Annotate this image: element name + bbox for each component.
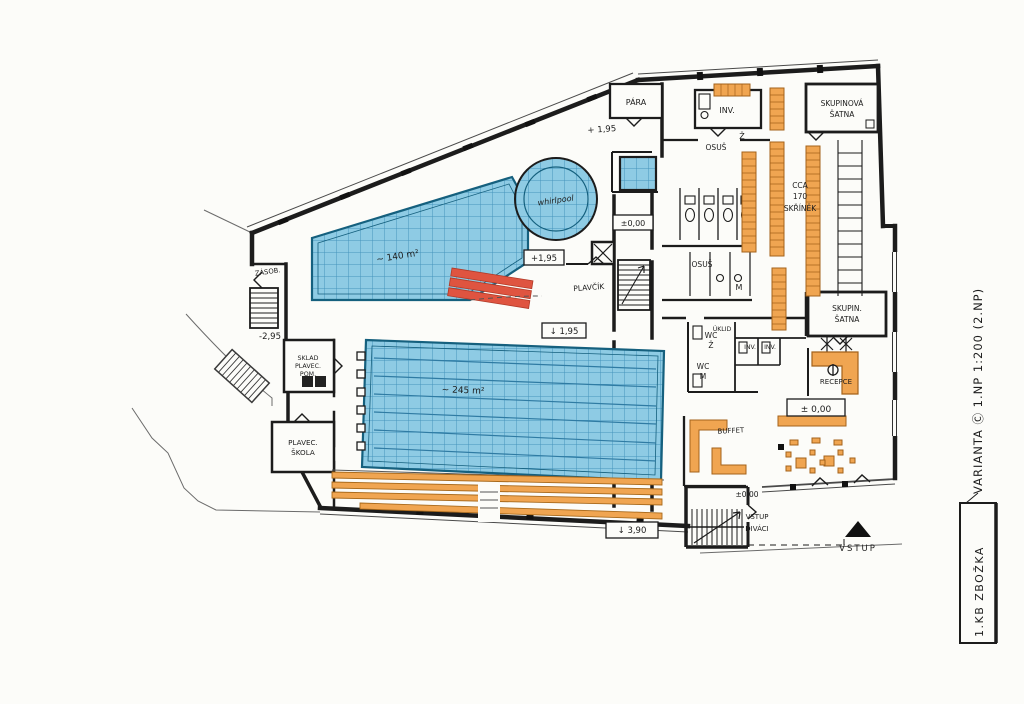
level-plus195-deck: + 1,95 bbox=[587, 124, 616, 136]
room-label-zasob: ZÁSOB. bbox=[254, 265, 281, 278]
entrance-turnstiles bbox=[821, 336, 852, 352]
room-label-skupin-satna-2: ŠATNA bbox=[835, 315, 861, 324]
margin-variant-note: VARIANTA Ⓒ 1.NP 1:200 (2.NP) bbox=[971, 288, 985, 494]
room-label-osus-a: OSUŠ bbox=[706, 143, 727, 152]
plunge-pool bbox=[612, 152, 658, 192]
room-label-buffet: BUFFET bbox=[717, 426, 745, 435]
entry-vstup-divaci-2: DIVÁCI bbox=[745, 524, 768, 533]
room-label-plavec-skola-1: PLAVEC. bbox=[288, 438, 318, 447]
marker-z: Ž bbox=[739, 130, 745, 141]
room-label-osus-b: OSUŠ bbox=[692, 260, 713, 269]
room-label-plavcik: PLAVČÍK bbox=[573, 282, 606, 293]
room-label-inv-top: INV. bbox=[719, 106, 734, 115]
level-zero-stair: ±0,00 bbox=[621, 219, 646, 228]
room-label-inv-a: INV. bbox=[744, 344, 756, 351]
level-down390-box: ↓ 3,90 bbox=[618, 526, 647, 536]
level-plus195-box: +1,95 bbox=[531, 254, 557, 264]
marker-m: M bbox=[736, 283, 743, 292]
room-label-plavec-skola-2: ŠKOLA bbox=[291, 448, 315, 457]
room-label-sklad-3: POM. bbox=[300, 371, 316, 378]
tribune-aisle bbox=[478, 484, 500, 522]
lockers-note-3: SKŘÍNĚK bbox=[784, 204, 817, 213]
room-label-wc-m-2: M bbox=[700, 372, 706, 381]
room-label-skupin-satna-1: SKUPIN. bbox=[832, 304, 862, 313]
lockers-note-1: CCA bbox=[792, 181, 808, 190]
central-stair-corridor bbox=[592, 242, 650, 310]
level-zero-recepce: ± 0,00 bbox=[801, 405, 832, 415]
floor-plan-canvas: PÁRA + 1,95 INV. Ž OSUŠ SKUPINOVÁ ŠATNA … bbox=[0, 0, 1024, 704]
reception-chair bbox=[828, 364, 838, 376]
room-label-wc-m-1: WC bbox=[697, 362, 710, 371]
room-label-inv-b: INV. bbox=[764, 344, 776, 351]
level-zero-entry: ±0,00 bbox=[736, 490, 759, 499]
buffet-counters bbox=[690, 416, 855, 474]
room-label-para: PÁRA bbox=[626, 96, 647, 107]
exterior-stair-southwest bbox=[215, 350, 270, 403]
floor-plan-drawing: PÁRA + 1,95 INV. Ž OSUŠ SKUPINOVÁ ŠATNA … bbox=[0, 0, 1024, 704]
pool-area-245: ~ 245 m² bbox=[441, 385, 485, 397]
entry-vstup: VSTUP bbox=[839, 544, 877, 554]
room-label-wc-z-2: Ž bbox=[708, 341, 713, 350]
vstup-arrow bbox=[845, 521, 871, 537]
room-label-skupinova-satna-2: ŠATNA bbox=[830, 110, 856, 119]
lockers-note-2: 170 bbox=[793, 192, 808, 201]
room-label-sklad-1: SKLAD bbox=[298, 355, 319, 362]
level-minus295: -2,95 bbox=[259, 332, 281, 342]
room-label-sklad-2: PLAVEC. bbox=[295, 363, 321, 370]
room-label-uklid: ÚKLID bbox=[713, 324, 732, 333]
level-down195-box: ↓ 1,95 bbox=[550, 327, 579, 337]
right-wall-windows bbox=[890, 252, 899, 436]
room-label-skupinova-satna-1: SKUPINOVÁ bbox=[821, 99, 865, 108]
entry-vstup-divaci-1: VSTUP bbox=[746, 513, 769, 521]
room-label-recepce: RECEPCE bbox=[820, 378, 852, 386]
changing-benches bbox=[838, 140, 862, 296]
margin-title-box: 1.KB ZBOŽKA bbox=[973, 546, 986, 637]
main-pool bbox=[357, 340, 664, 481]
